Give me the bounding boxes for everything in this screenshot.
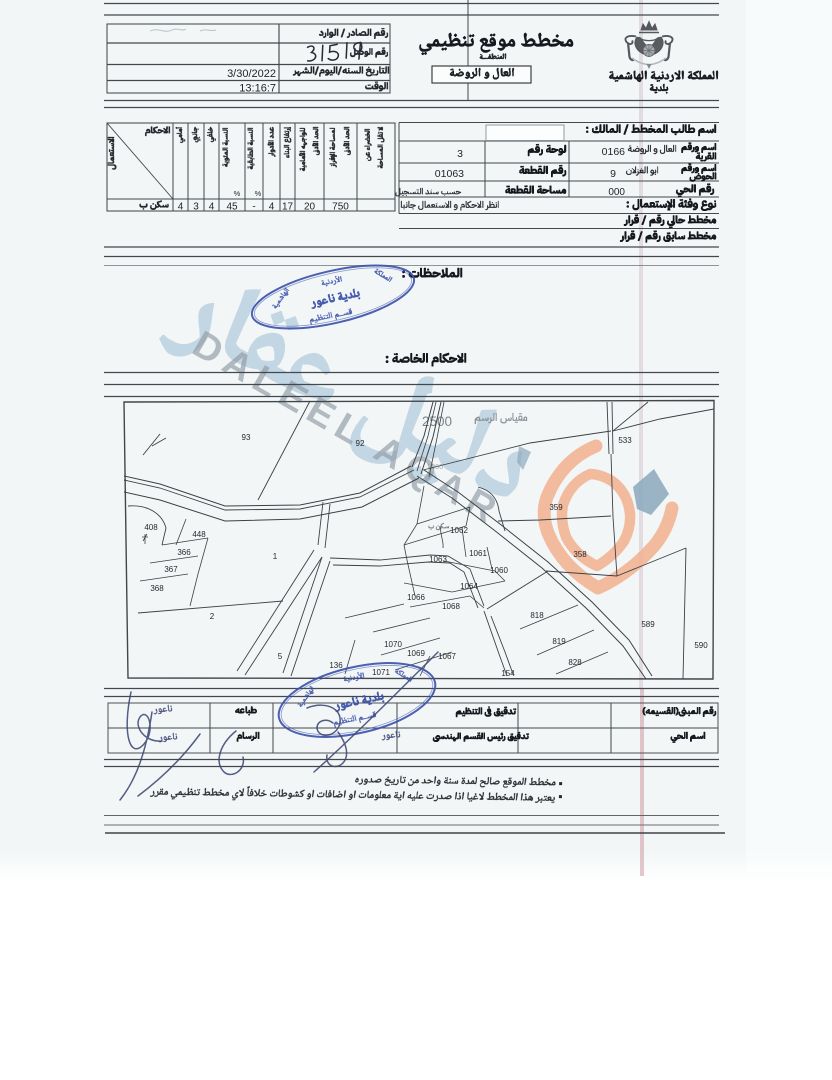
svg-text:92: 92: [356, 439, 365, 448]
svg-text:1061: 1061: [469, 549, 487, 558]
svg-text:%: %: [234, 189, 241, 198]
svg-text:4: 4: [269, 202, 275, 213]
svg-text:1070: 1070: [384, 640, 402, 649]
svg-text:3: 3: [193, 202, 199, 213]
svg-text:01063: 01063: [435, 168, 464, 180]
svg-text:2: 2: [210, 612, 215, 621]
svg-text:154: 154: [501, 669, 515, 678]
svg-text:4: 4: [178, 202, 184, 213]
svg-text:136: 136: [329, 661, 343, 670]
svg-text:408: 408: [144, 523, 158, 532]
svg-text:1060: 1060: [427, 462, 444, 471]
svg-text:9: 9: [610, 168, 616, 180]
svg-text:1068: 1068: [442, 602, 460, 611]
svg-text:DALEEL AQAR: DALEEL AQAR: [186, 323, 510, 534]
svg-text:448: 448: [192, 530, 206, 539]
svg-text:5: 5: [278, 652, 283, 661]
svg-text:367: 367: [164, 565, 178, 574]
svg-text:1069: 1069: [407, 649, 425, 658]
svg-text:750: 750: [332, 202, 349, 213]
svg-text:1: 1: [273, 552, 278, 561]
svg-text:358: 358: [573, 550, 587, 559]
svg-text:20: 20: [304, 202, 316, 213]
svg-text:590: 590: [694, 641, 708, 650]
svg-text:819: 819: [552, 637, 566, 646]
svg-text:3: 3: [457, 148, 463, 160]
svg-text:4: 4: [209, 202, 215, 213]
svg-text:-: -: [252, 202, 255, 213]
svg-text:1064: 1064: [460, 582, 478, 591]
svg-text:1060: 1060: [490, 566, 508, 575]
svg-text:13:16:7: 13:16:7: [239, 83, 276, 95]
svg-text:93: 93: [242, 433, 251, 442]
svg-text:359: 359: [549, 503, 563, 512]
svg-text:%: %: [255, 189, 262, 198]
svg-text:3/30/2022: 3/30/2022: [227, 68, 276, 80]
svg-text:1071: 1071: [372, 668, 390, 677]
svg-text:828: 828: [568, 658, 582, 667]
svg-text:366: 366: [177, 548, 191, 557]
svg-text:1066: 1066: [407, 593, 425, 602]
svg-text:589: 589: [641, 620, 655, 629]
svg-text:1067: 1067: [438, 652, 456, 661]
svg-text:45: 45: [226, 202, 238, 213]
svg-text:1063: 1063: [429, 555, 447, 564]
svg-text:533: 533: [618, 436, 632, 445]
svg-text:000: 000: [608, 187, 625, 198]
svg-text:0166: 0166: [602, 146, 626, 158]
svg-text:1062: 1062: [450, 526, 468, 535]
svg-text:17: 17: [282, 202, 294, 213]
svg-text:368: 368: [150, 584, 164, 593]
svg-text:818: 818: [530, 611, 544, 620]
